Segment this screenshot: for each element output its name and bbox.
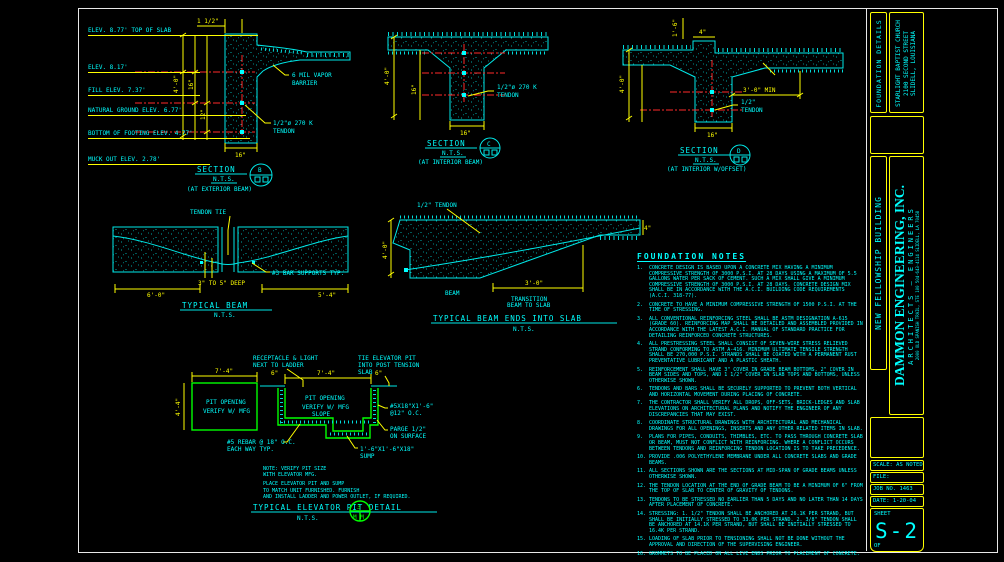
section-interior-offset-detail: 4'-0" 1'-6" 4" 3'-0" MIN 16" 1/2" TENDON… xyxy=(615,15,850,175)
note-text: COORDINATE STRUCTURAL DRAWINGS WITH ARCH… xyxy=(649,421,865,432)
section-bubble-letter: B xyxy=(258,167,262,174)
pit-section-opening-1: PIT OPENING xyxy=(305,395,345,402)
foundation-note-item: 12.THE TENDON LOCATION AT THE END OF GRA… xyxy=(637,484,865,495)
section-interior-beam-detail: 4'-0" 16" 16" 1/2"ø 270 K TENDON SECTION… xyxy=(380,20,560,165)
sump-label-2: SUMP xyxy=(360,453,375,460)
note-text: LOADING OF SLAB PRIOR TO TENSIONING SHAL… xyxy=(649,537,865,548)
beam-label: BEAM xyxy=(445,290,460,297)
dim-height-label: 4'-0" xyxy=(619,75,626,93)
pit-section-width-dim: 7'-4" xyxy=(317,370,335,377)
dim-left-label: 6'-0" xyxy=(147,292,165,299)
note-number: 2. xyxy=(637,303,647,314)
tb-row-date: DATE: 1-20-04 xyxy=(870,496,924,507)
note-text: ALL PRESTRESSING STEEL SHALL CONSIST OF … xyxy=(649,342,865,364)
note-text: THE TENDON LOCATION AT THE END OF GRADE … xyxy=(649,484,865,495)
bar-support-dot xyxy=(200,261,203,264)
tendon-dot xyxy=(240,70,244,74)
tb-client-address2: SLIDELL, LOUISIANA xyxy=(910,31,918,96)
dim-height-label: 4'-0" xyxy=(384,67,391,85)
tb-client-name: STARLIGHT BAPTIST CHURCH xyxy=(895,20,903,107)
note-number: 8. xyxy=(637,421,647,432)
tendon-label-1: 1/2"ø 270 K xyxy=(273,120,313,127)
tb-firm-name: DAMMON ENGINEERING, INC. xyxy=(893,185,907,386)
tb-client-box: STARLIGHT BAPTIST CHURCH 2100 SECOND STR… xyxy=(889,12,924,113)
elevation-label: ELEV. 8.17' xyxy=(88,64,200,73)
tendon-dot xyxy=(240,101,244,105)
typical-beam-detail: TENDON TIE #3 BAR SUPPORTS TYP. 3" TO 5"… xyxy=(100,200,360,318)
note-number: 4. xyxy=(637,342,647,364)
dim-h1-label: 16" xyxy=(411,84,418,95)
tb-building-box: NEW FELLOWSHIP BUILDING xyxy=(870,156,887,370)
concrete-block-left xyxy=(113,227,218,272)
note-number: 15. xyxy=(637,537,647,548)
note-text: CONCRETE TO HAVE A MINIMUM COMPRESSIVE S… xyxy=(649,303,865,314)
pit-plan-width-dim: 7'-4" xyxy=(215,368,233,375)
detail-title: TYPICAL BEAM xyxy=(182,301,248,310)
slope-label: SLOPE xyxy=(312,411,330,418)
foundation-note-item: 2.CONCRETE TO HAVE A MINIMUM COMPRESSIVE… xyxy=(637,303,865,314)
pit-plan-outline xyxy=(192,383,257,430)
foundation-note-item: 1.CONCRETE DESIGN IS BASED UPON A CONCRE… xyxy=(637,266,865,300)
dim-height-label: 4'-0" xyxy=(382,241,389,259)
detail-scale: N.T.S. xyxy=(297,515,319,522)
receptacle-label-2: NEXT TO LADDER xyxy=(253,362,304,369)
tendon-dot xyxy=(462,93,466,97)
pit-plan-height-dim: 4'-4" xyxy=(175,398,182,416)
foundation-note-item: 6.TENDONS AND BARS SHALL BE SECURELY SUP… xyxy=(637,387,865,398)
tendon-dot xyxy=(462,71,466,75)
detail-scale: N.T.S. xyxy=(214,312,236,319)
tb-of-label: OF xyxy=(874,543,923,549)
section-bubble-letter: C xyxy=(487,141,491,148)
section-scale: N.T.S. xyxy=(695,157,717,164)
tb-empty-box-1 xyxy=(870,116,924,154)
note-number: 14. xyxy=(637,512,647,534)
elevation-label: ELEV. 8.77' TOP OF SLAB xyxy=(88,27,258,36)
pit-note-line: AND INSTALL LADDER AND POWER OUTLET, IF … xyxy=(263,494,453,500)
section-scale: N.T.S. xyxy=(442,150,464,157)
note-number: 5. xyxy=(637,368,647,385)
dim-top-label: 1 1/2" xyxy=(197,18,219,25)
tb-row-jobno: JOB NO. 1463 xyxy=(870,484,924,495)
tb-project-type-box: FOUNDATION DETAILS xyxy=(870,12,887,113)
depth-label: 3" TO 5" DEEP xyxy=(198,280,245,287)
tendon-dot xyxy=(710,90,714,94)
section-title: SECTION xyxy=(427,139,466,148)
receptacle-label-1: RECEPTACLE & LIGHT xyxy=(253,355,318,362)
rebar-label-2: EACH WAY TYP. xyxy=(227,446,274,453)
sump-label-1: 1'-6"X1'-6"X18" xyxy=(360,446,414,453)
note-number: 6. xyxy=(637,387,647,398)
vapor-leader xyxy=(273,65,289,75)
tb-row-file: FILE: xyxy=(870,472,924,483)
detail-bubble-top: 3 xyxy=(357,504,361,511)
foundation-notes-panel: FOUNDATION NOTES 1.CONCRETE DESIGN IS BA… xyxy=(637,252,865,540)
tendon-dot xyxy=(710,108,714,112)
pit-opening-label-2: VERIFY W/ MFG xyxy=(203,408,250,415)
foundation-note-item: 8.COORDINATE STRUCTURAL DRAWINGS WITH AR… xyxy=(637,421,865,432)
section-title: SECTION xyxy=(680,146,719,155)
tendon-tie-loop xyxy=(218,263,238,265)
vapor-barrier-label-1: 6 MIL VAPOR xyxy=(292,72,332,79)
dim-right-label: 5'-4" xyxy=(318,292,336,299)
pit-offset-dim-right: 6" xyxy=(375,370,382,377)
note-number: 7. xyxy=(637,401,647,418)
tendon-tie-label: TENDON TIE xyxy=(190,209,227,216)
detail-title: TYPICAL BEAM ENDS INTO SLAB xyxy=(433,314,582,323)
bars-label-1: #5X18"X1'-6" xyxy=(390,403,433,410)
parge-label-1: PARGE 1/2" xyxy=(390,426,426,433)
tie-slab-label-3: SLAB xyxy=(358,369,373,376)
note-text: TENDONS TO BE STRESSED NO EARLIER THAN 5… xyxy=(649,498,865,509)
dim-width-label: 16" xyxy=(235,152,246,159)
transition-dim-label: 3'-0" xyxy=(525,280,543,287)
elevator-pit-detail: 7'-4" 4'-4" PIT OPENING VERIFY W/ MFG 7'… xyxy=(175,350,445,535)
section-location: (AT INTERIOR W/OFFSET) xyxy=(667,166,746,173)
note-text: PLANS FOR PIPES, CONDUITS, THIMBLES, ETC… xyxy=(649,435,865,452)
pit-section-opening-2: VERIFY W/ MFG xyxy=(302,404,349,411)
tb-building-name: NEW FELLOWSHIP BUILDING xyxy=(874,196,883,330)
tie-slab-label-2: INTO POST TENSION xyxy=(358,362,420,369)
parge-label-2: ON SURFACE xyxy=(390,433,427,440)
beam-ends-into-slab-detail: 1/2" TENDON 4'-0" BEAM 3'-0" TRANSITION … xyxy=(385,195,650,335)
tb-row-scale: SCALE: AS NOTED xyxy=(870,460,924,471)
pit-note-line: WITH ELEVATOR MFG. xyxy=(263,472,453,478)
section-location: (AT EXTERIOR BEAM) xyxy=(187,186,252,193)
tendon-label: 1/2" TENDON xyxy=(417,202,457,209)
transition-label-2: BEAM TO SLAB xyxy=(507,302,551,309)
foundation-note-item: 14.STRESSING: 1. 1/2" TENDON SHALL BE AN… xyxy=(637,512,865,534)
foundation-note-item: 4.ALL PRESTRESSING STEEL SHALL CONSIST O… xyxy=(637,342,865,364)
tb-firm-box: DAMMON ENGINEERING, INC. ARCHITECTS — EN… xyxy=(889,156,924,415)
note-text: ALL CONVENTIONAL REINFORCING STEEL SHALL… xyxy=(649,317,865,339)
foundation-notes-title: FOUNDATION NOTES xyxy=(637,252,865,261)
section-scale: N.T.S. xyxy=(213,176,235,183)
note-number: 10. xyxy=(637,455,647,466)
titleblock-divider xyxy=(866,8,867,551)
note-number: 13. xyxy=(637,498,647,509)
dim-min-label: 3'-0" MIN xyxy=(743,87,776,94)
foundation-note-item: 3.ALL CONVENTIONAL REINFORCING STEEL SHA… xyxy=(637,317,865,339)
pit-offset-dim-left: 6" xyxy=(271,370,278,377)
note-text: ALL SECTIONS SHOWN ARE THE SECTIONS AT M… xyxy=(649,469,865,480)
tendon-dot xyxy=(462,51,466,55)
note-text: REINFORCEMENT SHALL HAVE 3" COVER IN GRA… xyxy=(649,368,865,385)
section-location: (AT INTERIOR BEAM) xyxy=(418,159,483,166)
note-number: 12. xyxy=(637,484,647,495)
foundation-note-item: 13.TENDONS TO BE STRESSED NO EARLIER THA… xyxy=(637,498,865,509)
foundation-note-item: 15.LOADING OF SLAB PRIOR TO TENSIONING S… xyxy=(637,537,865,548)
dim-curb-label: 4" xyxy=(699,29,706,36)
foundation-notes-list: 1.CONCRETE DESIGN IS BASED UPON A CONCRE… xyxy=(637,266,865,557)
tb-empty-box-2 xyxy=(870,417,924,458)
elevator-pit-note: NOTE: VERIFY PIT SIZEWITH ELEVATOR MFG.P… xyxy=(263,466,453,500)
note-number: 11. xyxy=(637,469,647,480)
bars-leader xyxy=(378,405,388,408)
note-text: THE CONTRACTOR SHALL VERIFY ALL DROPS, O… xyxy=(649,401,865,418)
elevation-label: NATURAL GROUND ELEV. 6.77' xyxy=(88,107,246,116)
tendon-label-1: 1/2" xyxy=(741,99,755,106)
tb-client-address1: 2100 SECOND STREET xyxy=(903,31,911,96)
tendon-label-2: TENDON xyxy=(741,107,763,114)
tb-project-type: FOUNDATION DETAILS xyxy=(875,19,883,107)
section-title: SECTION xyxy=(197,165,236,174)
note-text: GROMMETS TO BE PLACED ON ALL LIVE ENDS P… xyxy=(649,552,865,558)
tb-firm-address: 2000 OLD SPANISH TRAIL, STE 100 504-643-… xyxy=(915,211,920,360)
tie-slab-label-1: TIE ELEVATOR PIT xyxy=(358,355,416,362)
foundation-note-item: 10.PROVIDE .006 POLYETHYLENE MEMBRANE UN… xyxy=(637,455,865,466)
edge-dim-label: 4" xyxy=(644,225,651,232)
elevation-label: FILL ELEV. 7.37' xyxy=(88,87,200,96)
section-bubble-letter: D xyxy=(737,148,741,155)
foundation-note-item: 16.GROMMETS TO BE PLACED ON ALL LIVE END… xyxy=(637,552,865,558)
vapor-barrier-label-2: BARRIER xyxy=(292,80,318,87)
detail-scale: N.T.S. xyxy=(513,326,535,333)
dim-width-label: 16" xyxy=(707,132,718,139)
elevation-label: MUCK OUT ELEV. 2.78' xyxy=(88,156,210,165)
tendon-anchor-dot xyxy=(404,268,408,272)
detail-bubble-bottom: M M xyxy=(353,514,364,521)
note-text: PROVIDE .006 POLYETHYLENE MEMBRANE UNDER… xyxy=(649,455,865,466)
detail-title: TYPICAL ELEVATOR PIT DETAIL xyxy=(253,503,402,512)
tb-sheet-number: S-2 xyxy=(871,519,923,543)
note-number: 1. xyxy=(637,266,647,300)
note-text: TENDONS AND BARS SHALL BE SECURELY SUPPO… xyxy=(649,387,865,398)
elevation-label: BOTTOM OF FOOTING ELEV. 4.77' xyxy=(88,130,250,139)
bars-label-2: @12" O.C. xyxy=(390,410,423,417)
tendon-tie-leader xyxy=(228,216,230,255)
foundation-note-item: 7.THE CONTRACTOR SHALL VERIFY ALL DROPS,… xyxy=(637,401,865,418)
tie-slab-leader xyxy=(385,376,389,386)
note-number: 3. xyxy=(637,317,647,339)
tb-sheet-box: SHEET S-2 OF xyxy=(870,508,924,552)
foundation-note-item: 11.ALL SECTIONS SHOWN ARE THE SECTIONS A… xyxy=(637,469,865,480)
concrete-tbeam-outline xyxy=(388,37,548,120)
bar-supports-label: #3 BAR SUPPORTS TYP. xyxy=(272,270,344,277)
rebar-label-1: #5 REBAR @ 18" O.C. xyxy=(227,439,296,446)
tb-sheet-label: SHEET xyxy=(874,511,923,517)
tendon-label-2: TENDON xyxy=(497,92,519,99)
beam-slab-outline xyxy=(393,220,640,278)
tendon-label-1: 1/2"ø 270 K xyxy=(497,84,537,91)
pit-opening-label-1: PIT OPENING xyxy=(206,399,246,406)
tendon-label-2: TENDON xyxy=(273,128,295,135)
tb-firm-subtitle: ARCHITECTS — ENGINEERS xyxy=(907,206,915,365)
section-exterior-beam-detail: 4'-0" 16" 12" 1 1/2" 16" 6 MIL VAPOR BAR… xyxy=(85,15,360,195)
note-text: CONCRETE DESIGN IS BASED UPON A CONCRETE… xyxy=(649,266,865,300)
foundation-note-item: 5.REINFORCEMENT SHALL HAVE 3" COVER IN G… xyxy=(637,368,865,385)
note-number: 9. xyxy=(637,435,647,452)
dim-width-label: 16" xyxy=(460,130,471,137)
note-text: STRESSING: 1. 1/2" TENDON SHALL BE ANCHO… xyxy=(649,512,865,534)
dim-drop-label: 1'-6" xyxy=(672,19,679,37)
foundation-note-item: 9.PLANS FOR PIPES, CONDUITS, THIMBLES, E… xyxy=(637,435,865,452)
note-number: 16. xyxy=(637,552,647,558)
